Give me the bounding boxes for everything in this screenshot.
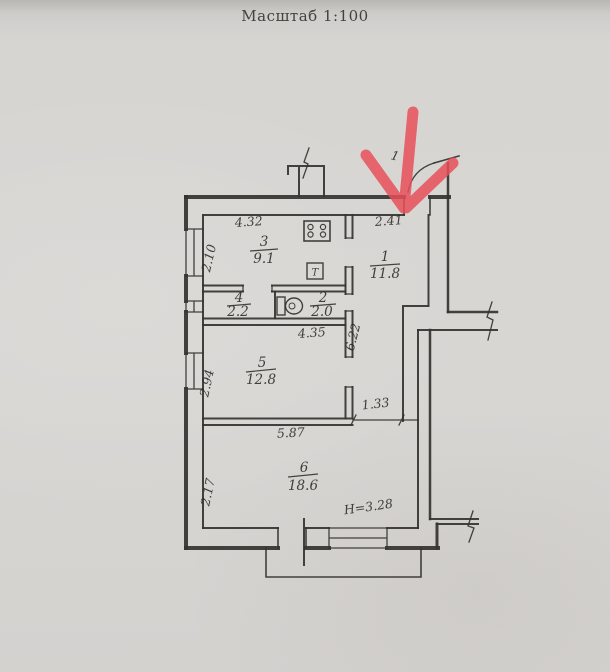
room3-area: 9.1 <box>253 251 274 267</box>
room6-area: 18.6 <box>288 478 318 494</box>
toilet-icon <box>277 297 303 315</box>
room1-number: 1 <box>381 249 390 265</box>
room3-number: 3 <box>260 234 269 250</box>
room4-area: 2.2 <box>226 304 248 320</box>
dim-corridor-opening: 1.33 <box>361 395 390 413</box>
interior-walls <box>203 215 429 425</box>
entry-mark: 1 <box>389 147 400 163</box>
dim-room5-top: 4.35 <box>296 324 326 341</box>
dim-line-1-33 <box>351 415 404 425</box>
room1-area: 11.8 <box>370 266 400 282</box>
towel-dryer-label: Т <box>312 268 320 279</box>
dim-hall-width: 2.41 <box>373 212 403 229</box>
scanned-floor-plan-photo: Масштаб 1:100 <box>0 0 610 672</box>
stove-icon <box>304 221 330 241</box>
dim-kitchen-width: 4.32 <box>233 213 263 230</box>
vent-shaft <box>288 148 324 196</box>
towel-dryer-icon: Т <box>307 263 323 279</box>
red-arrow-annotation <box>366 112 453 208</box>
dim-kitchen-window: 2.10 <box>198 243 219 275</box>
room5-number: 5 <box>258 355 267 371</box>
room2-area: 2.0 <box>310 304 333 320</box>
room6-number: 6 <box>300 460 309 476</box>
scale-title: Масштаб 1:100 <box>241 7 368 25</box>
dim-room6-width: 5.87 <box>276 424 305 440</box>
dim-room6-left: 2.17 <box>197 477 218 508</box>
room5-area: 12.8 <box>246 372 276 388</box>
floor-plan-drawing: Масштаб 1:100 <box>0 0 610 672</box>
dim-room5-window: 2.94 <box>196 368 217 399</box>
dim-ceiling-height: H=3.28 <box>342 496 394 518</box>
